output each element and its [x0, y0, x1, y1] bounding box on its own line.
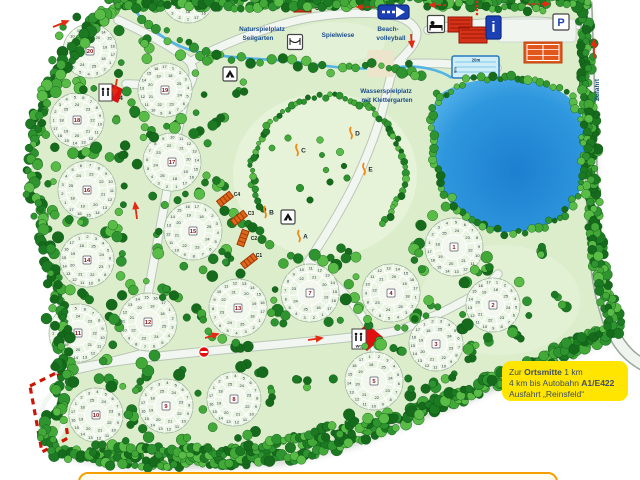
svg-text:10: 10 — [170, 134, 175, 139]
svg-text:15: 15 — [144, 295, 149, 300]
svg-text:14: 14 — [95, 210, 100, 215]
svg-text:16: 16 — [352, 363, 357, 368]
svg-text:14: 14 — [445, 268, 450, 273]
svg-text:25: 25 — [381, 365, 386, 370]
info-sign: i — [486, 16, 501, 39]
campground-map-page: 620m8m4WC1234567891011121314151617181920… — [0, 0, 640, 480]
svg-text:10: 10 — [483, 324, 488, 329]
ring-8: 1234567891011121314151617181920212223242… — [207, 372, 261, 426]
svg-text:A: A — [303, 234, 308, 241]
svg-text:24: 24 — [99, 252, 104, 257]
svg-text:10: 10 — [299, 267, 304, 272]
svg-text:14: 14 — [80, 431, 85, 436]
svg-text:4: 4 — [119, 95, 123, 102]
svg-text:12: 12 — [167, 426, 172, 431]
svg-text:21: 21 — [236, 411, 241, 416]
svg-text:17: 17 — [260, 309, 265, 314]
svg-text:13: 13 — [325, 272, 330, 277]
svg-text:23: 23 — [220, 310, 225, 315]
tennis-court — [524, 42, 562, 63]
svg-text:20: 20 — [75, 133, 80, 138]
ring-15: 1234567891011121314151617181920212223242… — [164, 202, 222, 260]
svg-text:16: 16 — [209, 401, 214, 406]
svg-text:C3: C3 — [248, 211, 255, 217]
svg-text:18: 18 — [79, 243, 84, 248]
svg-text:18: 18 — [218, 389, 223, 394]
svg-text:19: 19 — [64, 128, 69, 133]
svg-text:13: 13 — [88, 435, 93, 440]
svg-text:24: 24 — [102, 399, 107, 404]
barrier-dot — [476, 9, 479, 12]
svg-text:23: 23 — [109, 408, 114, 413]
svg-text:19: 19 — [162, 88, 169, 94]
svg-text:14: 14 — [142, 77, 147, 82]
svg-text:16: 16 — [141, 408, 146, 413]
svg-text:14: 14 — [62, 263, 67, 268]
svg-text:17: 17 — [359, 357, 364, 362]
legend-box-cutoff — [78, 472, 558, 480]
svg-text:15: 15 — [62, 255, 67, 260]
label-spielwiese: Spielwiese — [322, 32, 355, 39]
svg-text:22: 22 — [245, 404, 250, 409]
svg-text:14: 14 — [250, 285, 255, 290]
svg-text:16: 16 — [478, 283, 483, 288]
svg-text:20: 20 — [137, 305, 142, 310]
svg-text:20: 20 — [86, 426, 91, 431]
svg-text:24: 24 — [172, 390, 177, 395]
svg-text:12: 12 — [377, 268, 382, 273]
svg-text:20: 20 — [176, 220, 181, 225]
svg-text:22: 22 — [92, 330, 97, 335]
svg-text:18: 18 — [173, 176, 178, 181]
svg-text:20: 20 — [244, 291, 249, 296]
svg-text:14: 14 — [395, 266, 400, 271]
svg-text:23: 23 — [247, 392, 252, 397]
svg-text:13: 13 — [167, 222, 172, 227]
svg-text:24: 24 — [293, 299, 298, 304]
svg-text:17: 17 — [413, 286, 418, 291]
svg-text:C2: C2 — [251, 236, 258, 242]
svg-text:22: 22 — [157, 102, 162, 107]
svg-text:18: 18 — [160, 311, 165, 316]
svg-text:12: 12 — [145, 320, 151, 326]
svg-text:16: 16 — [58, 133, 63, 138]
svg-text:15: 15 — [194, 166, 199, 171]
svg-text:22: 22 — [177, 411, 182, 416]
svg-text:15: 15 — [144, 416, 149, 421]
svg-text:24: 24 — [447, 334, 452, 339]
svg-text:10: 10 — [93, 413, 99, 419]
svg-text:E: E — [368, 167, 373, 174]
label-wasserspielplatz_line2: mit Klettergarten — [361, 97, 412, 104]
svg-text:19: 19 — [149, 407, 154, 412]
svg-text:22: 22 — [372, 288, 377, 293]
svg-text:23: 23 — [179, 399, 184, 404]
svg-text:21: 21 — [312, 274, 317, 279]
svg-text:14: 14 — [150, 422, 155, 427]
label-beach_line1: Beach- — [377, 26, 398, 33]
svg-text:16: 16 — [410, 277, 415, 282]
svg-text:10: 10 — [441, 363, 446, 368]
svg-text:13: 13 — [226, 419, 231, 424]
svg-text:19: 19 — [438, 254, 443, 259]
svg-text:13: 13 — [83, 354, 88, 359]
label-beach_line2: volleyball — [376, 35, 405, 42]
svg-text:16: 16 — [77, 211, 82, 216]
svg-text:17: 17 — [194, 15, 199, 20]
svg-text:21: 21 — [478, 311, 483, 316]
svg-text:20: 20 — [186, 157, 191, 162]
svg-text:20: 20 — [475, 300, 480, 305]
svg-text:20: 20 — [449, 261, 454, 266]
svg-text:11: 11 — [75, 331, 82, 337]
svg-text:10: 10 — [475, 253, 480, 258]
svg-text:16: 16 — [154, 66, 159, 71]
svg-text:19: 19 — [402, 281, 407, 286]
svg-text:13: 13 — [349, 389, 354, 394]
svg-text:12: 12 — [166, 231, 171, 236]
svg-text:14: 14 — [73, 141, 78, 146]
svg-text:17: 17 — [69, 240, 74, 245]
one-way-sign — [378, 5, 409, 19]
svg-text:19: 19 — [358, 369, 363, 374]
tent-sign-1 — [223, 67, 237, 81]
svg-text:15: 15 — [190, 229, 197, 235]
svg-text:20: 20 — [355, 381, 360, 386]
svg-text:18: 18 — [369, 362, 374, 367]
svg-text:18: 18 — [150, 396, 155, 401]
svg-text:17: 17 — [427, 249, 432, 254]
ring-16: 1234567891011121314151617181920212223242… — [58, 161, 116, 219]
svg-text:12: 12 — [187, 141, 192, 146]
svg-text:12: 12 — [235, 419, 240, 424]
svg-text:12: 12 — [89, 136, 94, 141]
svg-text:15: 15 — [74, 425, 79, 430]
svg-text:17: 17 — [111, 52, 116, 57]
svg-text:13: 13 — [386, 266, 391, 271]
svg-text:21: 21 — [179, 146, 184, 151]
seilgarten-sign — [288, 35, 303, 50]
svg-text:24: 24 — [205, 237, 210, 242]
ring-5: 1234567891011121314151617181920212223242… — [345, 352, 403, 410]
parking-sign: P — [553, 14, 569, 30]
svg-text:22: 22 — [99, 179, 104, 184]
svg-text:18: 18 — [80, 405, 85, 410]
svg-text:25: 25 — [438, 326, 443, 331]
svg-text:14: 14 — [135, 297, 140, 302]
svg-text:20: 20 — [96, 35, 101, 40]
svg-text:14: 14 — [330, 280, 335, 285]
svg-text:19: 19 — [217, 400, 222, 405]
label-naturspielplatz_line1: Naturspielplatz — [239, 26, 285, 33]
svg-text:10: 10 — [89, 280, 94, 285]
svg-text:23: 23 — [449, 345, 454, 350]
svg-text:13: 13 — [140, 86, 145, 91]
svg-text:10: 10 — [249, 412, 254, 417]
svg-text:16: 16 — [84, 188, 91, 194]
svg-text:19: 19 — [156, 73, 161, 78]
svg-text:24: 24 — [386, 307, 391, 312]
svg-text:21: 21 — [149, 94, 154, 99]
svg-text:16: 16 — [190, 175, 195, 180]
svg-text:17: 17 — [486, 280, 491, 285]
barrier-dot — [476, 13, 479, 16]
svg-text:13: 13 — [235, 306, 242, 312]
svg-text:18: 18 — [168, 73, 173, 78]
ring-14: 1234567891011121314151617181920212223242… — [60, 233, 114, 287]
ring-9: 1234567891011121314151617181920212223242… — [139, 379, 193, 433]
svg-text:22: 22 — [167, 143, 172, 148]
red-arrow — [411, 34, 412, 47]
svg-text:12: 12 — [425, 363, 430, 368]
svg-text:18: 18 — [74, 118, 81, 124]
svg-text:12: 12 — [355, 397, 360, 402]
barrier-dot — [476, 5, 479, 8]
ring-10: 1234567891011121314151617181920212223242… — [69, 388, 123, 442]
svg-text:20: 20 — [224, 410, 229, 415]
svg-text:19: 19 — [482, 290, 487, 295]
svg-text:C: C — [301, 148, 306, 155]
svg-text:12: 12 — [72, 277, 77, 282]
barrier-dot — [476, 1, 479, 4]
svg-text:D: D — [355, 131, 360, 138]
svg-text:19: 19 — [419, 337, 424, 342]
svg-text:18: 18 — [199, 214, 204, 219]
svg-text:18: 18 — [426, 328, 431, 333]
svg-text:21: 21 — [461, 258, 466, 263]
svg-text:23: 23 — [156, 150, 161, 155]
svg-text:17: 17 — [71, 409, 76, 414]
svg-text:23: 23 — [195, 245, 200, 250]
svg-text:24: 24 — [177, 93, 182, 98]
svg-text:18: 18 — [316, 305, 321, 310]
svg-text:22: 22 — [299, 276, 304, 281]
svg-text:24: 24 — [76, 314, 81, 319]
svg-text:24: 24 — [80, 62, 85, 67]
svg-text:24: 24 — [76, 173, 81, 178]
svg-text:18: 18 — [101, 56, 106, 61]
svg-text:20m: 20m — [472, 58, 481, 63]
svg-text:16: 16 — [64, 247, 69, 252]
svg-text:25: 25 — [207, 224, 212, 229]
svg-text:16: 16 — [185, 204, 190, 209]
svg-text:24: 24 — [153, 162, 158, 167]
svg-text:WC: WC — [356, 344, 363, 349]
svg-text:25: 25 — [69, 183, 74, 188]
svg-text:21: 21 — [101, 192, 106, 197]
ring-19: 1234567891011121314151617181920212223242… — [138, 63, 192, 117]
svg-text:15: 15 — [472, 289, 477, 294]
svg-text:17: 17 — [416, 327, 421, 332]
svg-text:12: 12 — [463, 267, 468, 272]
svg-text:12: 12 — [141, 94, 146, 99]
svg-text:13: 13 — [192, 149, 197, 154]
svg-text:12: 12 — [91, 350, 96, 355]
svg-text:18: 18 — [493, 287, 498, 292]
svg-text:18: 18 — [59, 117, 64, 122]
svg-text:24: 24 — [506, 305, 511, 310]
svg-text:19: 19 — [150, 303, 155, 308]
svg-text:21: 21 — [98, 427, 103, 432]
svg-text:20: 20 — [70, 263, 75, 268]
svg-text:13: 13 — [158, 426, 163, 431]
svg-text:25: 25 — [240, 322, 245, 327]
svg-text:17: 17 — [327, 306, 332, 311]
svg-text:13: 13 — [103, 205, 108, 210]
svg-text:23: 23 — [169, 101, 174, 106]
svg-text:21: 21 — [130, 315, 135, 320]
svg-text:13: 13 — [81, 140, 86, 145]
svg-text:22: 22 — [375, 395, 380, 400]
svg-text:23: 23 — [89, 171, 94, 176]
svg-text:15: 15 — [64, 138, 69, 143]
svg-text:21: 21 — [168, 418, 173, 423]
svg-text:19: 19 — [103, 44, 108, 49]
svg-text:20: 20 — [87, 49, 93, 55]
svg-text:17: 17 — [141, 400, 146, 405]
svg-text:24: 24 — [240, 383, 245, 388]
svg-text:22: 22 — [221, 297, 226, 302]
svg-text:19: 19 — [79, 416, 84, 421]
svg-text:19: 19 — [71, 251, 76, 256]
svg-text:C1: C1 — [256, 253, 263, 259]
ring-2: 1234567891011121314151617181920212223242… — [466, 278, 520, 332]
svg-text:13: 13 — [454, 269, 459, 274]
svg-text:21: 21 — [86, 128, 91, 133]
svg-text:15: 15 — [348, 371, 353, 376]
svg-text:23: 23 — [99, 264, 104, 269]
label-zufahrt: Zufahrt — [594, 78, 601, 101]
svg-text:20: 20 — [392, 274, 397, 279]
svg-text:24: 24 — [455, 228, 460, 233]
lounger-sign — [428, 16, 445, 33]
svg-text:17: 17 — [169, 160, 175, 166]
svg-text:13: 13 — [468, 305, 473, 310]
svg-text:22: 22 — [107, 420, 112, 425]
info-line-1: Zur Ortsmitte 1 km — [509, 367, 621, 378]
svg-text:25: 25 — [160, 388, 165, 393]
svg-text:7: 7 — [308, 291, 311, 297]
svg-text:15: 15 — [411, 343, 416, 348]
svg-text:23: 23 — [88, 319, 93, 324]
svg-text:P: P — [557, 17, 564, 29]
svg-text:25: 25 — [162, 324, 167, 329]
svg-text:24: 24 — [388, 376, 393, 381]
svg-text:22: 22 — [468, 247, 473, 252]
svg-text:21: 21 — [379, 277, 384, 282]
svg-text:20: 20 — [322, 282, 327, 287]
svg-text:21: 21 — [175, 233, 180, 238]
svg-text:17: 17 — [209, 393, 214, 398]
ring-4: 1234567891011121314151617181920212223242… — [362, 264, 420, 322]
svg-text:25: 25 — [91, 243, 96, 248]
ring-18: 1234567891011121314151617181920212223242… — [50, 93, 104, 147]
svg-text:17: 17 — [195, 204, 200, 209]
campground-map: 620m8m4WC1234567891011121314151617181920… — [0, 0, 640, 480]
svg-text:14: 14 — [468, 296, 473, 301]
ring-3: 1234567891011121314151617181920212223242… — [409, 317, 463, 371]
svg-text:15: 15 — [257, 292, 262, 297]
svg-text:18: 18 — [405, 293, 410, 298]
svg-text:21: 21 — [430, 356, 435, 361]
svg-text:23: 23 — [375, 300, 380, 305]
svg-text:15: 15 — [333, 289, 338, 294]
svg-text:24: 24 — [75, 102, 80, 107]
label-naturspielplatz_line2: Seilgarten — [243, 35, 274, 42]
svg-text:14: 14 — [84, 258, 91, 264]
svg-text:10: 10 — [175, 247, 180, 252]
svg-text:14: 14 — [101, 29, 106, 34]
info-line-3: Ausfahrt „Reinsfeld“ — [509, 389, 621, 400]
svg-text:B: B — [269, 210, 274, 217]
svg-text:23: 23 — [292, 286, 297, 291]
svg-text:17: 17 — [53, 126, 58, 131]
svg-text:20: 20 — [76, 347, 81, 352]
svg-text:25: 25 — [303, 307, 308, 312]
svg-text:23: 23 — [385, 388, 390, 393]
svg-text:14: 14 — [347, 380, 352, 385]
svg-text:24: 24 — [227, 320, 232, 325]
svg-text:25: 25 — [503, 293, 508, 298]
svg-text:10: 10 — [108, 179, 113, 184]
svg-text:25: 25 — [177, 81, 182, 86]
no-entry-sign — [199, 347, 209, 357]
svg-text:20: 20 — [148, 82, 153, 87]
svg-text:25: 25 — [64, 106, 69, 111]
svg-text:12: 12 — [123, 310, 128, 315]
svg-text:16: 16 — [71, 417, 76, 422]
svg-text:25: 25 — [228, 381, 233, 386]
svg-text:10: 10 — [181, 419, 186, 424]
svg-text:17: 17 — [162, 64, 167, 69]
svg-text:8m: 8m — [454, 67, 458, 73]
svg-text:17: 17 — [183, 181, 188, 186]
svg-text:21: 21 — [362, 392, 367, 397]
svg-text:13: 13 — [128, 302, 133, 307]
svg-text:14: 14 — [413, 351, 418, 356]
svg-text:23: 23 — [141, 336, 146, 341]
ring-13: 1234567891011121314151617181920212223242… — [209, 279, 267, 337]
label-wasserspielplatz_line1: Wasserspielplatz — [360, 88, 412, 95]
svg-text:15: 15 — [177, 208, 182, 213]
svg-text:24: 24 — [154, 334, 159, 339]
svg-text:14: 14 — [218, 415, 223, 420]
tent-sign-2 — [281, 210, 295, 224]
svg-text:13: 13 — [418, 358, 423, 363]
svg-text:10: 10 — [365, 282, 370, 287]
svg-text:15: 15 — [212, 409, 217, 414]
svg-text:23: 23 — [500, 315, 505, 320]
svg-text:15: 15 — [86, 212, 91, 217]
svg-text:2: 2 — [491, 303, 494, 309]
svg-text:18: 18 — [435, 242, 440, 247]
svg-text:18: 18 — [70, 196, 75, 201]
svg-text:10: 10 — [98, 122, 103, 127]
svg-text:15: 15 — [437, 264, 442, 269]
svg-text:20: 20 — [156, 417, 161, 422]
svg-text:13: 13 — [66, 271, 71, 276]
svg-text:23: 23 — [465, 235, 470, 240]
svg-text:12: 12 — [233, 281, 238, 286]
svg-text:10: 10 — [70, 33, 75, 38]
svg-text:16: 16 — [412, 334, 417, 339]
svg-text:22: 22 — [90, 117, 95, 122]
svg-text:14: 14 — [195, 157, 200, 162]
svg-text:22: 22 — [131, 328, 136, 333]
svg-text:15: 15 — [147, 71, 152, 76]
svg-text:20: 20 — [420, 349, 425, 354]
svg-text:12: 12 — [108, 197, 113, 202]
